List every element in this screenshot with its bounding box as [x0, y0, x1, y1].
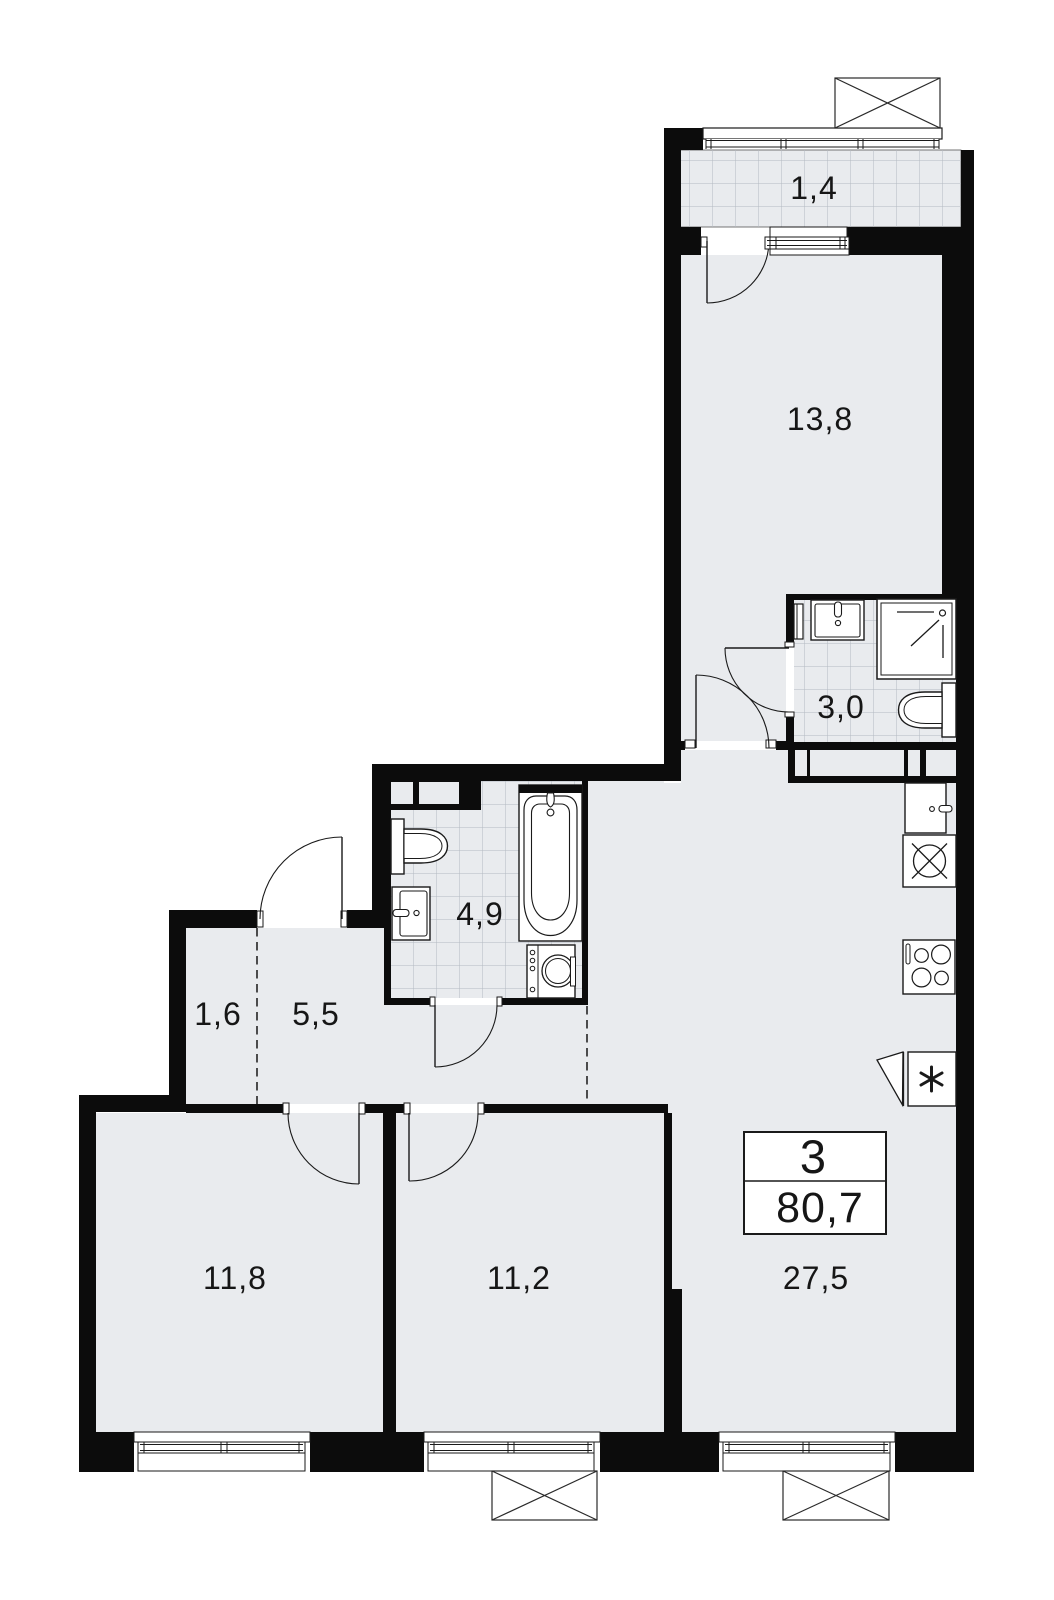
svg-text:11,2: 11,2: [487, 1260, 551, 1296]
svg-text:3: 3: [800, 1130, 826, 1183]
svg-text:11,8: 11,8: [203, 1260, 267, 1296]
svg-text:1,6: 1,6: [194, 996, 241, 1032]
svg-text:3,0: 3,0: [817, 689, 864, 725]
svg-text:4,9: 4,9: [456, 896, 503, 932]
svg-text:5,5: 5,5: [292, 996, 339, 1032]
svg-text:27,5: 27,5: [783, 1260, 849, 1296]
svg-text:1,4: 1,4: [790, 170, 837, 206]
svg-text:80,7: 80,7: [776, 1184, 864, 1232]
svg-text:13,8: 13,8: [787, 401, 853, 437]
